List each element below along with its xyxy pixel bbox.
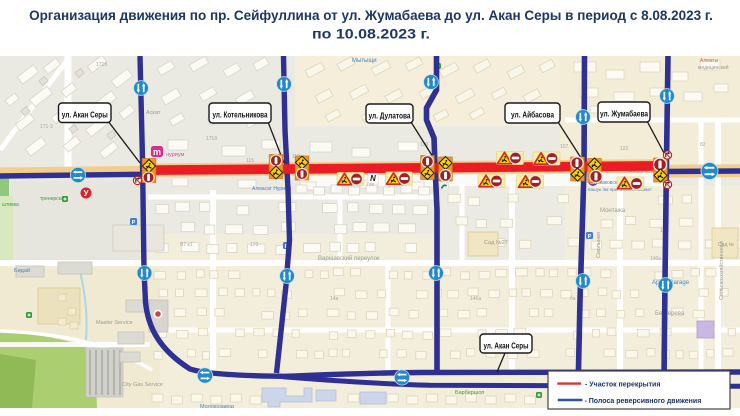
svg-text:140а: 140а [650, 256, 661, 262]
svg-text:Смольная: Смольная [596, 232, 602, 258]
svg-text:Мытыщи: Мытыщи [352, 58, 377, 64]
svg-text:ба: ба [570, 296, 576, 302]
svg-text:146а: 146а [470, 296, 481, 302]
svg-text:Master Service: Master Service [96, 320, 133, 326]
svg-text:m: m [153, 147, 161, 157]
svg-text:Варшавский переулок: Варшавский переулок [318, 255, 380, 262]
svg-text:ул. Дулатова: ул. Дулатова [369, 111, 411, 120]
svg-text:Бехтерева: Бехтерева [655, 311, 685, 317]
svg-text:Сад №27: Сад №27 [484, 240, 508, 246]
svg-text:Алматы: Алматы [700, 58, 719, 64]
svg-text:Барбершоп: Барбершоп [455, 390, 484, 396]
svg-text:ул. Котельникова: ул. Котельникова [213, 110, 268, 119]
svg-text:14а: 14а [330, 296, 339, 302]
svg-text:- Полоса реверсивного движения: - Полоса реверсивного движения [585, 398, 702, 405]
svg-text:City Gas Service: City Gas Service [122, 382, 163, 388]
svg-text:Сельскохозяйственная: Сельскохозяйственная [718, 241, 725, 300]
svg-text:по 10.08.2023 г.: по 10.08.2023 г. [312, 27, 430, 42]
svg-text:173: 173 [250, 242, 259, 248]
svg-text:В7 к1: В7 к1 [180, 242, 193, 248]
svg-text:115: 115 [246, 158, 254, 164]
svg-text:122: 122 [620, 146, 629, 152]
svg-text:107: 107 [560, 144, 569, 150]
svg-text:P: P [588, 234, 592, 240]
svg-text:ул. Акан Серы: ул. Акан Серы [484, 341, 529, 350]
svg-text:ул. Жумабаева: ул. Жумабаева [600, 109, 648, 118]
svg-text:Бидай: Бидай [14, 267, 30, 274]
svg-text:нуриум: нуриум [166, 152, 185, 158]
svg-text:Сад №: Сад № [718, 242, 734, 248]
svg-text:ул. Айбасова: ул. Айбасова [511, 110, 554, 119]
svg-text:171б: 171б [206, 136, 217, 142]
svg-text:P: P [132, 220, 136, 226]
svg-text:медицинский: медицинский [698, 64, 729, 71]
svg-text:штивка: штивка [2, 202, 19, 208]
svg-text:ул. Акан Серы: ул. Акан Серы [62, 110, 108, 119]
svg-text:Монтажа: Монтажа [600, 208, 626, 214]
svg-text:171-3: 171-3 [40, 124, 53, 130]
svg-text:N: N [370, 174, 376, 183]
svg-text:Аскат: Аскат [146, 110, 161, 116]
svg-text:Организация движения по пр. Се: Организация движения по пр. Сейфуллина о… [29, 8, 713, 23]
svg-text:- Участок перекрытия: - Участок перекрытия [585, 382, 660, 389]
svg-text:171б: 171б [96, 62, 107, 68]
svg-text:82: 82 [700, 142, 706, 148]
